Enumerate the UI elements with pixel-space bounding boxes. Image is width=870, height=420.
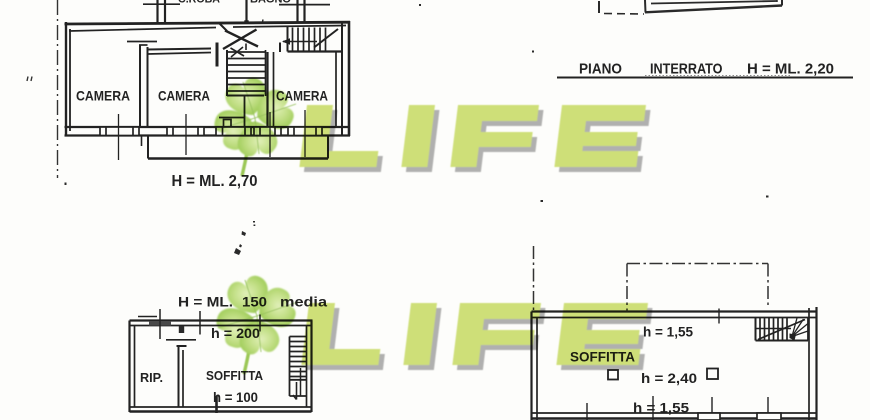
svg-text:CAMERA: CAMERA [158,88,210,104]
svg-text:CAMERA: CAMERA [76,88,130,104]
svg-text:PIANO: PIANO [579,61,622,78]
svg-text:INTERRATO: INTERRATO [650,61,723,78]
svg-text:H = ML. 2,20: H = ML. 2,20 [747,61,834,78]
svg-text:H = ML.: H = ML. [178,294,233,310]
svg-text:C.ROBA: C.ROBA [178,0,220,6]
svg-text:RIP.: RIP. [140,371,163,385]
svg-text:BAGNO: BAGNO [250,0,291,6]
svg-text:h = 100: h = 100 [213,389,258,405]
svg-text:H = ML. 2,70: H = ML. 2,70 [172,173,258,190]
svg-text:h = 1,55: h = 1,55 [643,324,693,340]
svg-text:h = 1,55: h = 1,55 [633,400,689,416]
svg-text:SOFFITTA: SOFFITTA [206,368,264,383]
svg-text:h = 2,40: h = 2,40 [641,370,697,386]
